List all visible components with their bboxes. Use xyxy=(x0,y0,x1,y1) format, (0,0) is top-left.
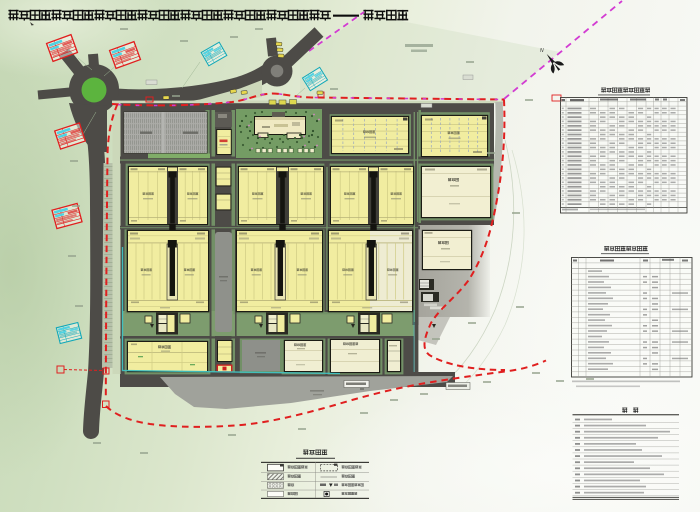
svg-text:N: N xyxy=(540,48,544,54)
